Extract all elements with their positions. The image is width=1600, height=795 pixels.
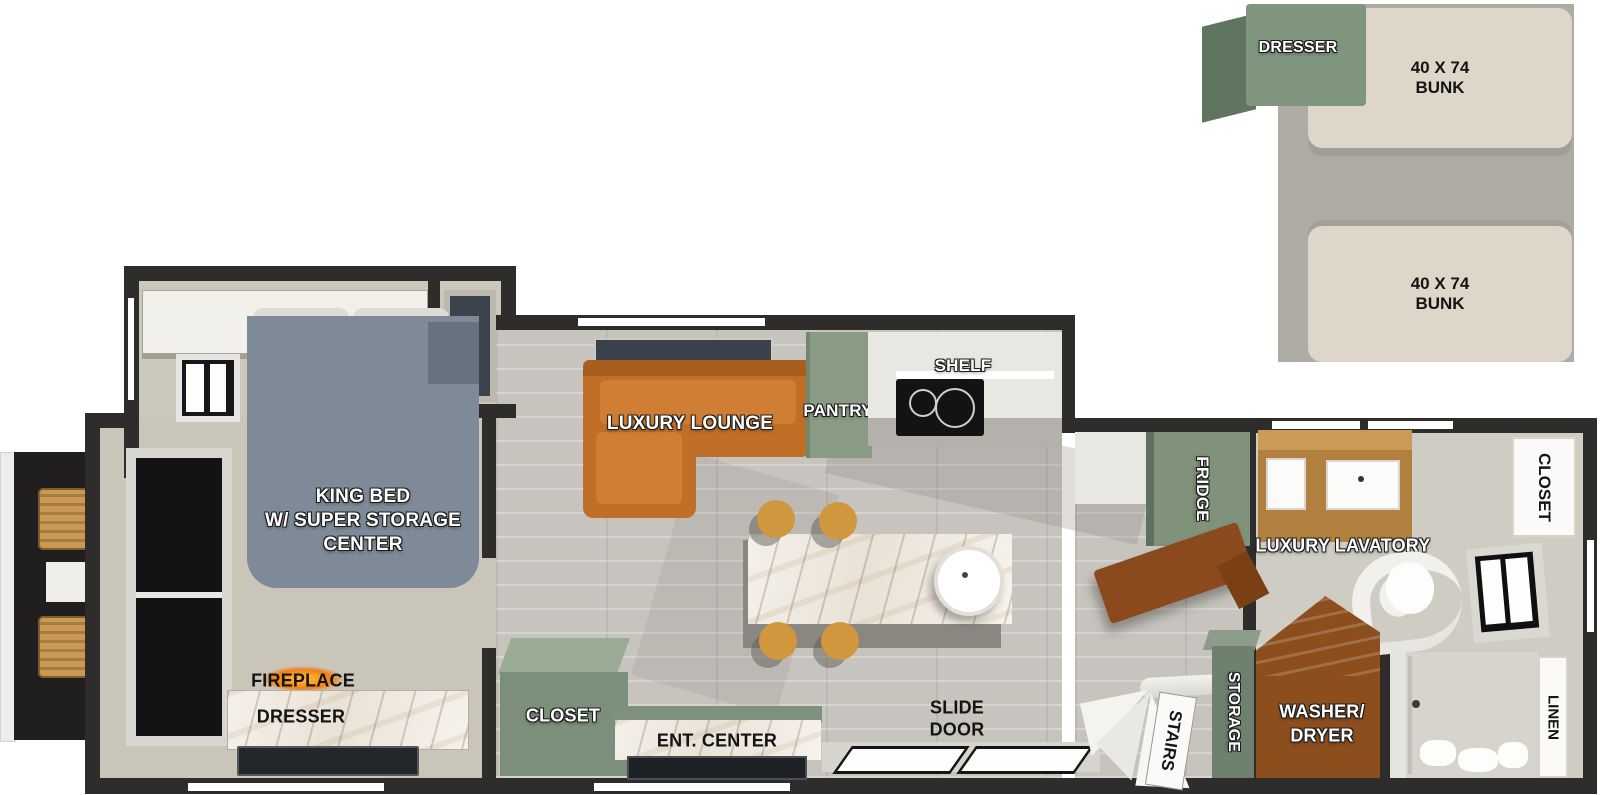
storage-label: STORAGE bbox=[1224, 672, 1242, 752]
island-sink-drain bbox=[962, 572, 968, 578]
bed-blanket bbox=[428, 322, 479, 384]
vanity-backsplash bbox=[1258, 430, 1412, 452]
pantry-cabinet bbox=[806, 332, 872, 458]
pantry-label: PANTRY bbox=[803, 401, 872, 421]
bath-closet-box: CLOSET bbox=[1512, 437, 1576, 537]
lounge-sofa-back bbox=[583, 360, 811, 376]
linen-label: LINEN bbox=[1545, 695, 1562, 740]
wall-left bbox=[85, 413, 100, 793]
cooktop-burner-small bbox=[909, 389, 937, 417]
island-stool-3 bbox=[759, 622, 797, 660]
island-stool-1 bbox=[757, 500, 795, 538]
wall-slideout-top bbox=[124, 266, 516, 281]
vanity-sink-right bbox=[1326, 460, 1400, 510]
slide-door-label-1: SLIDE bbox=[930, 698, 984, 719]
porch-table bbox=[46, 562, 88, 602]
island-stool-4 bbox=[821, 622, 859, 660]
bedroom-small-window-pane-1 bbox=[186, 364, 204, 412]
ent-center-label: ENT. CENTER bbox=[657, 731, 777, 752]
bedroom-window-mullion bbox=[136, 592, 222, 598]
island-stool-2 bbox=[819, 502, 857, 540]
fridge-label: FRIDGE bbox=[1192, 456, 1212, 521]
wall-bedroom-divider-upper bbox=[482, 418, 496, 558]
loft-dresser-label: DRESSER bbox=[1259, 39, 1338, 57]
vanity-sink-drain bbox=[1358, 476, 1364, 482]
bath-closet-label: CLOSET bbox=[1534, 453, 1554, 522]
stairs-label: STAIRS bbox=[1156, 709, 1185, 772]
fireplace-label: FIREPLACE bbox=[251, 671, 355, 692]
bedroom-passage-floor bbox=[482, 558, 496, 648]
window-slideout-left bbox=[128, 298, 134, 400]
slide-door-label-2: DOOR bbox=[930, 720, 985, 741]
loft-bunk-bottom-label: 40 X 74 BUNK bbox=[1308, 226, 1572, 362]
living-closet-top bbox=[498, 638, 630, 674]
wall-living-right bbox=[1062, 315, 1075, 432]
bunk2-type: BUNK bbox=[1415, 294, 1464, 314]
vanity-sink-left bbox=[1266, 458, 1306, 510]
bedroom-small-window-pane-2 bbox=[210, 364, 226, 412]
living-closet-label: CLOSET bbox=[526, 706, 600, 727]
shower-ledge-1 bbox=[1420, 740, 1456, 766]
floorplan-canvas: 40 X 74 BUNK 40 X 74 BUNK DRESSER bbox=[0, 0, 1600, 795]
shower-wall-pillar bbox=[1390, 652, 1406, 778]
island-sink bbox=[934, 546, 1004, 616]
linen-box: LINEN bbox=[1538, 656, 1568, 778]
cooktop-burner-large bbox=[935, 388, 975, 428]
wall-bedroom-divider-lower bbox=[482, 648, 496, 778]
shower-ledge-3 bbox=[1498, 742, 1528, 768]
lounge-chaise-cushion bbox=[596, 432, 682, 504]
window-bottom-2 bbox=[594, 783, 790, 791]
window-rear-top-2 bbox=[1368, 421, 1453, 429]
window-bottom-1 bbox=[188, 783, 384, 791]
porch-chair-bottom bbox=[38, 616, 92, 678]
shower-glass bbox=[1408, 656, 1412, 774]
window-right-wall bbox=[1587, 540, 1594, 632]
lounge-label: LUXURY LOUNGE bbox=[607, 413, 773, 435]
shower-handle bbox=[1412, 700, 1420, 708]
corner-counter bbox=[1075, 432, 1152, 504]
king-bed-label-1: KING BED bbox=[316, 486, 411, 508]
ent-center-tv bbox=[627, 756, 807, 780]
bedroom-tv bbox=[237, 746, 419, 776]
bunk1-size: 40 X 74 bbox=[1411, 58, 1470, 78]
window-rear-top-1 bbox=[1272, 421, 1360, 429]
bunk2-size: 40 X 74 bbox=[1411, 274, 1470, 294]
washer-dryer-label-2: DRYER bbox=[1290, 726, 1353, 747]
king-bed-label-3: CENTER bbox=[323, 534, 402, 556]
shelf-label: SHELF bbox=[935, 356, 992, 376]
bunk1-type: BUNK bbox=[1415, 78, 1464, 98]
bedroom-dresser-label: DRESSER bbox=[257, 707, 345, 728]
king-bed-label-2: W/ SUPER STORAGE bbox=[265, 510, 461, 532]
slide-door-pane-1 bbox=[832, 746, 970, 774]
washer-dryer-label-1: WASHER/ bbox=[1279, 702, 1364, 723]
porch-chair-top bbox=[38, 488, 92, 550]
shower-ledge-2 bbox=[1458, 748, 1498, 772]
window-living-top bbox=[578, 318, 765, 326]
